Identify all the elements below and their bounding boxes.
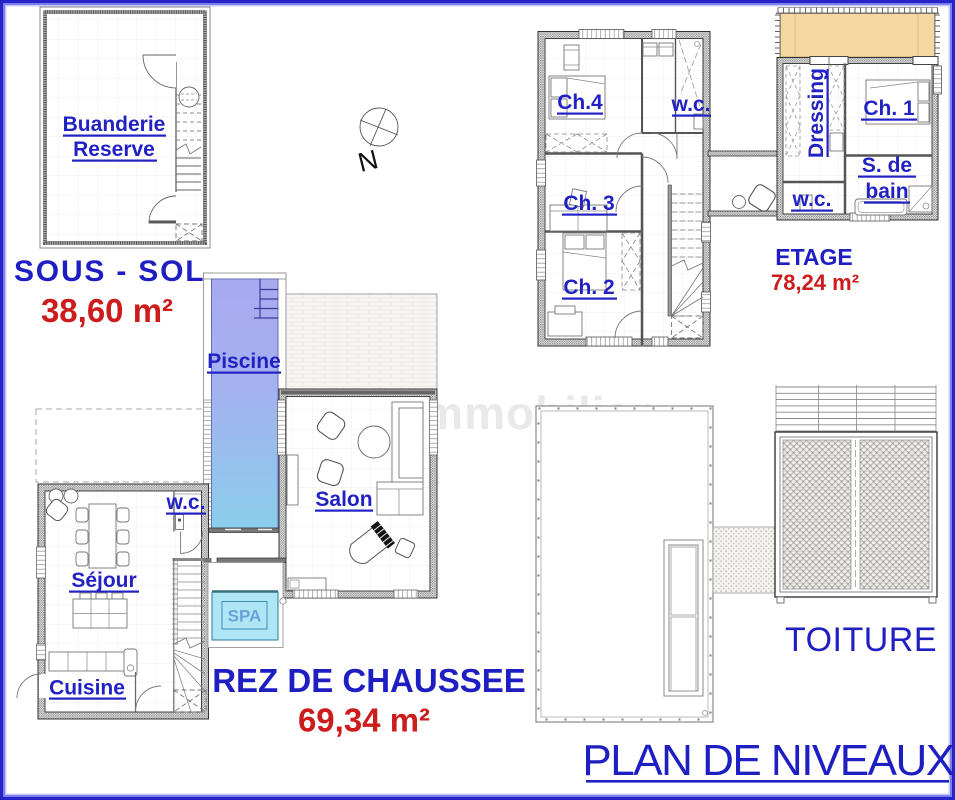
svg-text:Reserve: Reserve	[73, 138, 155, 161]
svg-text:Cuisine: Cuisine	[49, 677, 125, 700]
svg-text:Buanderie: Buanderie	[63, 113, 166, 136]
svg-text:Piscine: Piscine	[207, 350, 281, 373]
svg-text:S. de: S. de	[862, 154, 912, 177]
svg-text:SOUS - SOL: SOUS - SOL	[14, 255, 205, 288]
svg-text:Dressing: Dressing	[805, 68, 828, 158]
svg-text:SPA: SPA	[228, 607, 262, 626]
svg-text:bain: bain	[865, 180, 908, 203]
svg-text:TOITURE: TOITURE	[785, 621, 937, 659]
svg-text:REZ DE CHAUSSEE: REZ DE CHAUSSEE	[212, 662, 526, 699]
svg-text:Ch. 1: Ch. 1	[863, 97, 915, 120]
svg-text:38,60 m²: 38,60 m²	[41, 292, 173, 329]
svg-text:Ch. 2: Ch. 2	[563, 276, 614, 299]
svg-text:w.c.: w.c.	[792, 188, 832, 211]
svg-text:78,24 m²: 78,24 m²	[771, 270, 859, 295]
svg-text:w.c.: w.c.	[166, 491, 206, 514]
svg-text:Séjour: Séjour	[71, 569, 136, 592]
svg-text:PLAN DE NIVEAUX: PLAN DE NIVEAUX	[582, 736, 954, 785]
svg-text:Salon: Salon	[315, 488, 372, 511]
svg-text:69,34 m²: 69,34 m²	[298, 702, 430, 739]
svg-text:Ch. 3: Ch. 3	[563, 192, 614, 215]
svg-text:ETAGE: ETAGE	[775, 244, 853, 270]
svg-text:Ch.4: Ch.4	[557, 91, 603, 114]
svg-text:w.c.: w.c.	[671, 93, 711, 116]
